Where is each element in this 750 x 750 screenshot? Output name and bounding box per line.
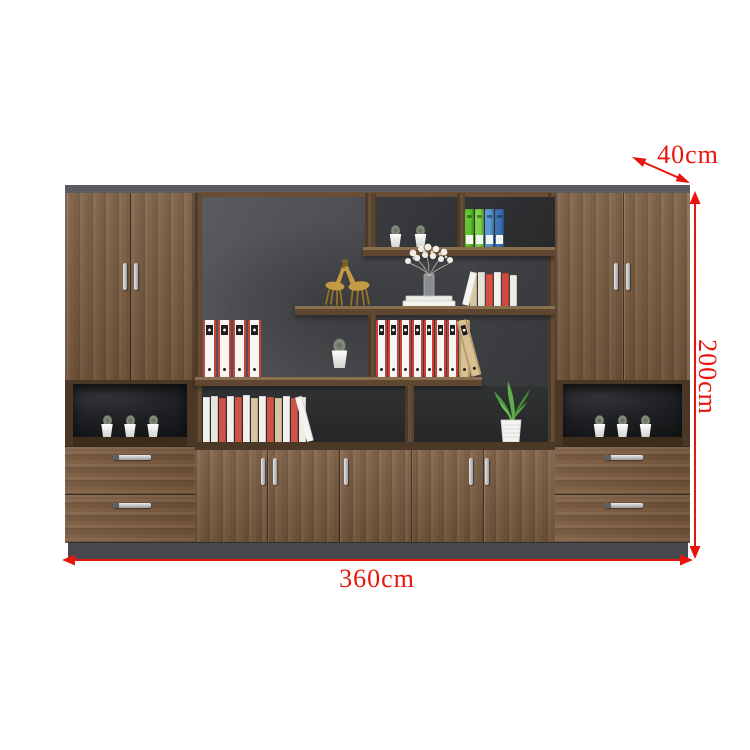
- hanging-box-divider: [457, 193, 465, 249]
- book-spine: [510, 275, 517, 306]
- pot-succulent: [615, 410, 630, 437]
- file-binder: [424, 320, 435, 377]
- door-handle: [273, 458, 277, 485]
- door-handle: [261, 458, 265, 485]
- shelf-divider: [405, 386, 414, 442]
- file-binder: [435, 320, 446, 377]
- depth-dimension-label: 40cm: [646, 142, 730, 168]
- display-shelf: [295, 306, 555, 315]
- middle-bottom-doors: [195, 450, 555, 542]
- pot-succulent: [146, 410, 161, 437]
- book-spine: [502, 273, 509, 306]
- file-binder: [475, 209, 484, 247]
- succulent-pot-row: [78, 406, 182, 437]
- niche-sill: [563, 437, 682, 446]
- file-binder: [485, 209, 494, 247]
- drawer-handle: [113, 455, 151, 460]
- book-spine: [486, 274, 493, 306]
- mid-shelf: [195, 377, 482, 386]
- book-row: [462, 271, 528, 306]
- drawer: [65, 446, 195, 495]
- book-spine: [251, 398, 258, 442]
- door-handle: [485, 458, 489, 485]
- file-binder: [203, 320, 216, 377]
- width-dimension-label: 360cm: [302, 566, 452, 592]
- book-spine: [211, 396, 218, 442]
- left-tower-doors: [65, 193, 195, 380]
- book-spine: [494, 272, 501, 306]
- hanging-box-shelf: [363, 247, 555, 256]
- book-spine: [478, 272, 485, 306]
- drawer: [65, 494, 195, 543]
- file-binder: [233, 320, 246, 377]
- height-dimension-label: 200cm: [694, 331, 720, 423]
- shelf-divider: [368, 315, 376, 377]
- frame-left: [195, 193, 202, 450]
- book-spine: [219, 398, 226, 442]
- book-spine: [235, 397, 242, 442]
- file-binder: [218, 320, 231, 377]
- succulent-pot-row: [568, 406, 677, 437]
- file-binder: [376, 320, 387, 377]
- door-seam: [411, 450, 412, 542]
- succulent-pot: [329, 332, 349, 368]
- file-binder: [388, 320, 399, 377]
- file-binder: [465, 209, 474, 247]
- book-spine: [259, 396, 266, 442]
- middle-shelving: [0, 0, 750, 32]
- drawer-handle: [605, 503, 643, 508]
- hanging-box-wall: [365, 193, 376, 255]
- door-seam: [483, 450, 484, 542]
- door-seam: [267, 450, 268, 542]
- green-potted-plant-icon: [488, 375, 534, 443]
- drawer-handle: [113, 503, 151, 508]
- niche-sill: [73, 437, 187, 446]
- file-binder: [412, 320, 423, 377]
- file-binder: [447, 320, 458, 377]
- door-seam: [339, 450, 340, 542]
- binder-row: [203, 320, 261, 377]
- book-spine: [283, 396, 290, 442]
- book-row: [203, 394, 323, 442]
- door-handle: [134, 263, 138, 290]
- file-binder: [400, 320, 411, 377]
- pot-succulent: [123, 410, 138, 437]
- door-handle: [614, 263, 618, 290]
- book-spine: [275, 398, 282, 442]
- door-handle: [123, 263, 127, 290]
- product-dimension-image: 360cm 200cm 40cm: [0, 0, 750, 750]
- pot-succulent: [638, 410, 653, 437]
- right-tower-doors: [555, 193, 690, 380]
- file-binder: [495, 209, 504, 247]
- drawer-handle: [605, 455, 643, 460]
- binder-row: [465, 208, 511, 247]
- pot-succulent: [592, 410, 607, 437]
- drawer: [555, 494, 690, 543]
- door-handle: [626, 263, 630, 290]
- drawer: [555, 446, 690, 495]
- binder-row: [376, 320, 482, 377]
- book-spine: [243, 395, 250, 442]
- white-flower-vase-on-books-icon: [400, 240, 458, 307]
- pot-succulent: [100, 410, 115, 437]
- door-handle: [469, 458, 473, 485]
- gold-deer-figurines-icon: [304, 257, 376, 307]
- file-binder: [248, 320, 261, 377]
- book-spine: [227, 396, 234, 442]
- door-handle: [344, 458, 348, 485]
- book-spine: [267, 397, 274, 442]
- book-spine: [203, 397, 210, 442]
